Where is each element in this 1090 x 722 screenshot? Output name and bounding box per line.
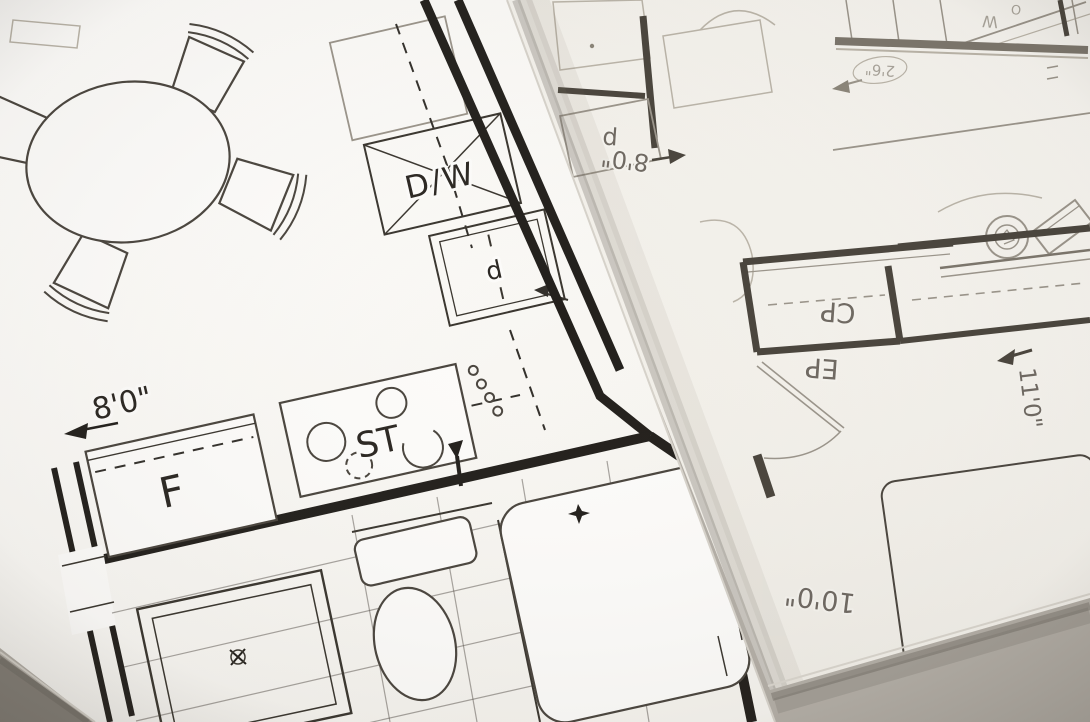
blueprint-scene: p 8'0" W O [0, 0, 1090, 722]
right-dim-faint: 2'6" [864, 60, 895, 80]
right-mark-o: O [1010, 1, 1021, 17]
right-mark-w: W [981, 11, 998, 31]
closet-cp-label: CP [819, 295, 856, 328]
photo-of-floor-plans: p 8'0" W O [0, 0, 1090, 722]
closet-ep-label: EP [804, 351, 839, 384]
